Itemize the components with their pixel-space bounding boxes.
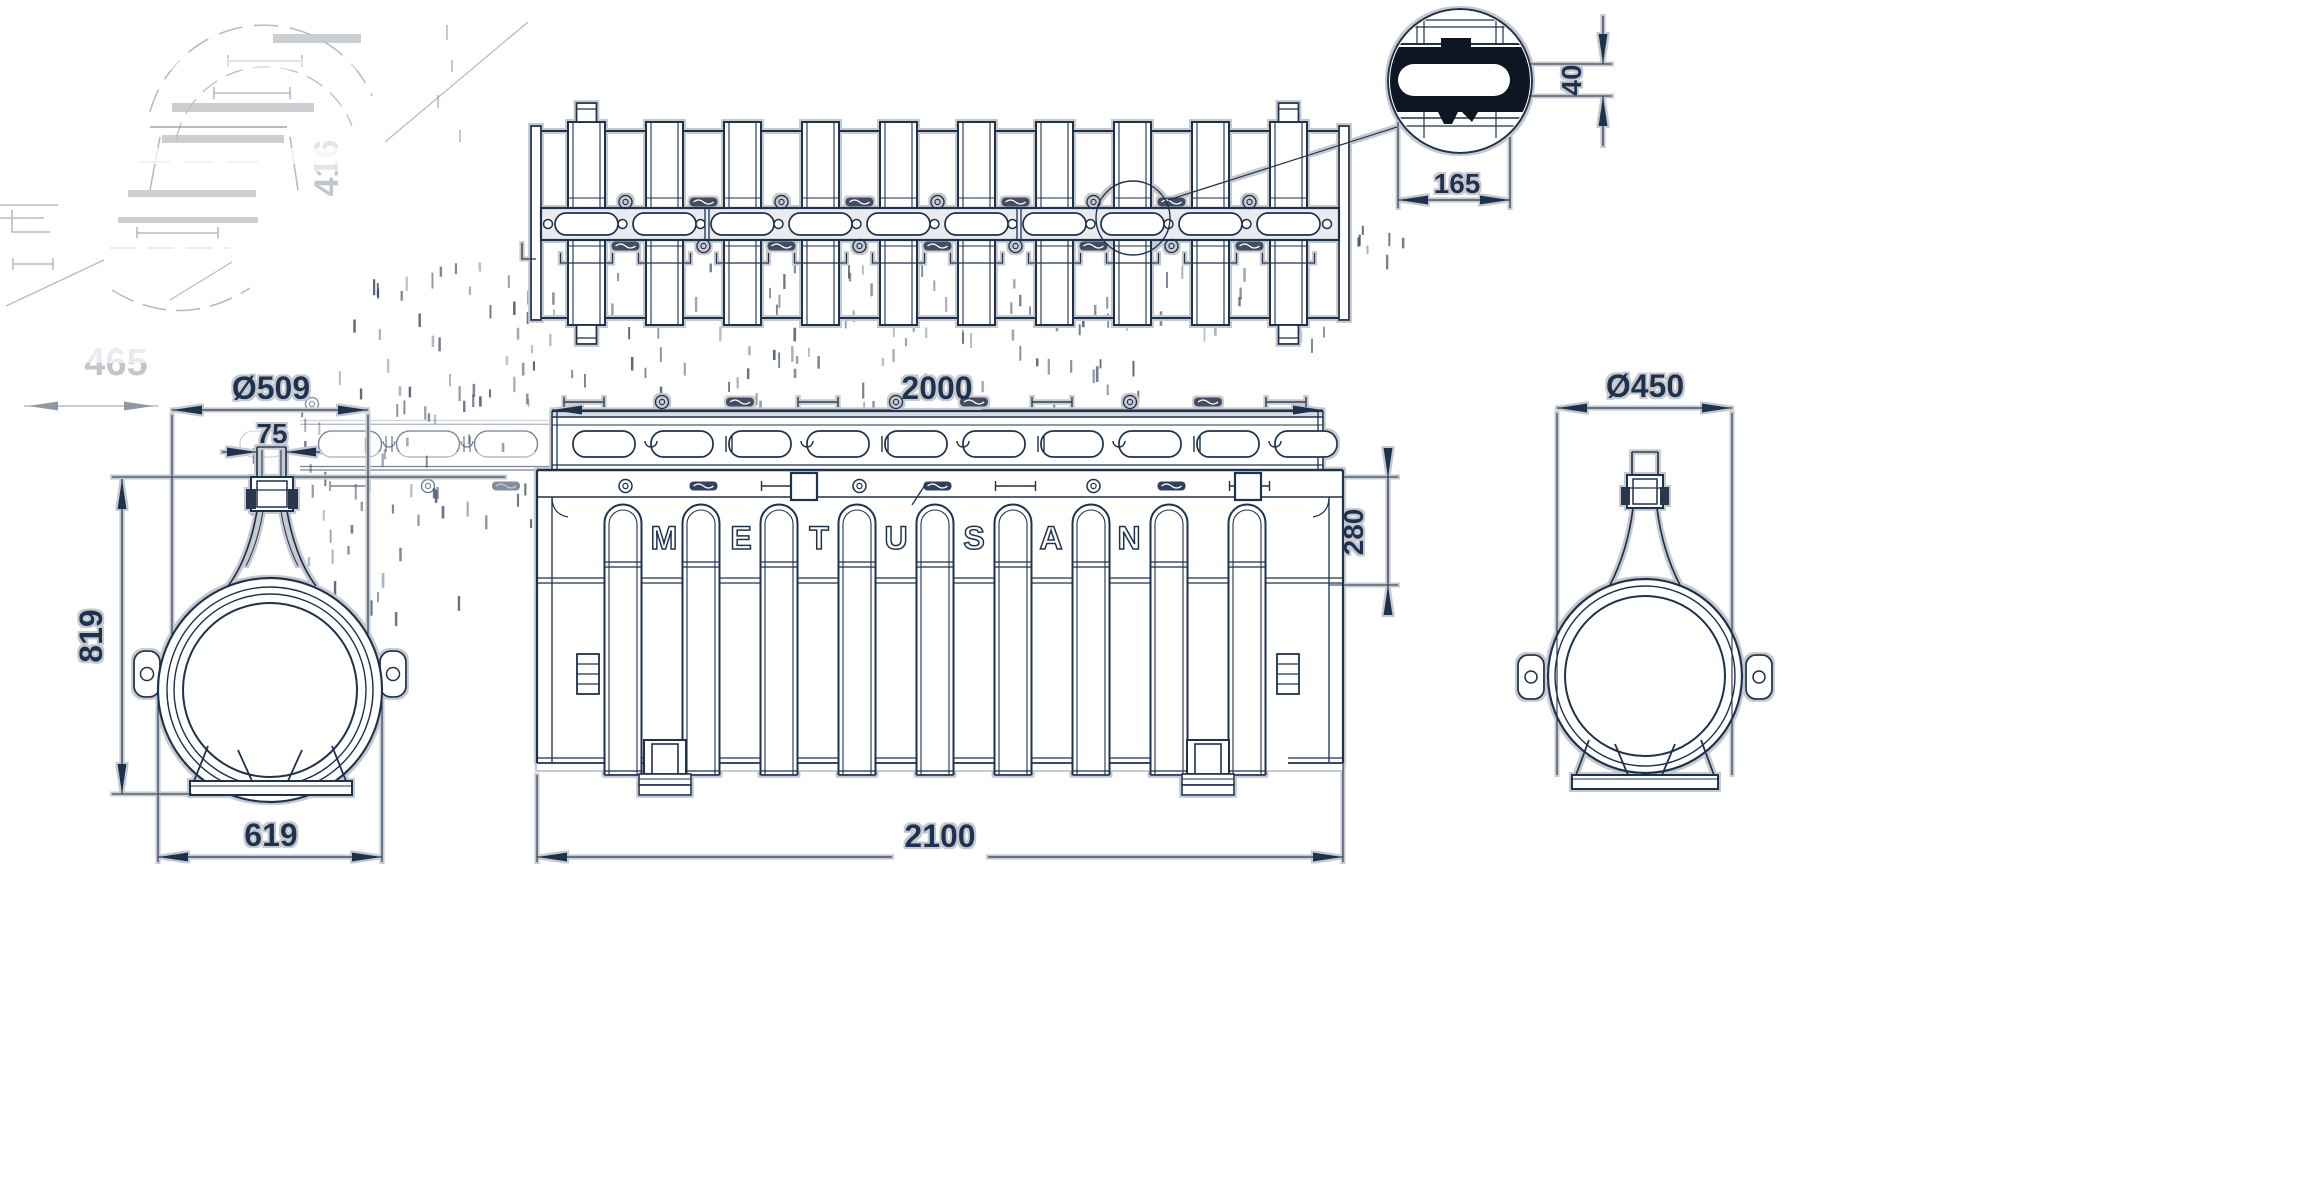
right-end-view [1518, 404, 1772, 790]
technical-drawing-canvas: 465 416 2000 2100 280 819 619 Ø509 75 Ø4… [0, 0, 2323, 1197]
brand-letter-u: U [884, 520, 907, 556]
elevation-view [537, 396, 1398, 863]
dim-left-height: 819 [73, 609, 109, 662]
brand-letter-t: T [809, 520, 829, 556]
dim-neck-width: 75 [256, 418, 287, 449]
dim-body-length: 2100 [904, 818, 975, 854]
dim-right-diameter: Ø450 [1606, 368, 1684, 404]
dim-left-diameter: Ø509 [232, 370, 310, 406]
drawing-sheet: 465 416 2000 2100 280 819 619 Ø509 75 Ø4… [0, 0, 2323, 1197]
dim-detail-slot-height: 40 [1556, 64, 1587, 95]
brand-letter-s: S [963, 520, 984, 556]
left-end-view [112, 406, 505, 863]
brand-letter-a: A [1039, 520, 1062, 556]
dim-grate-length: 2000 [901, 370, 972, 406]
brand-letter-n: N [1117, 520, 1140, 556]
plan-view [522, 103, 1349, 344]
dim-body-height: 280 [1338, 509, 1369, 556]
brand-letter-m: M [651, 520, 678, 556]
brand-letter-e: E [730, 520, 751, 556]
dim-detail-slot-length: 165 [1434, 168, 1481, 199]
dim-left-base-width: 619 [244, 817, 297, 853]
